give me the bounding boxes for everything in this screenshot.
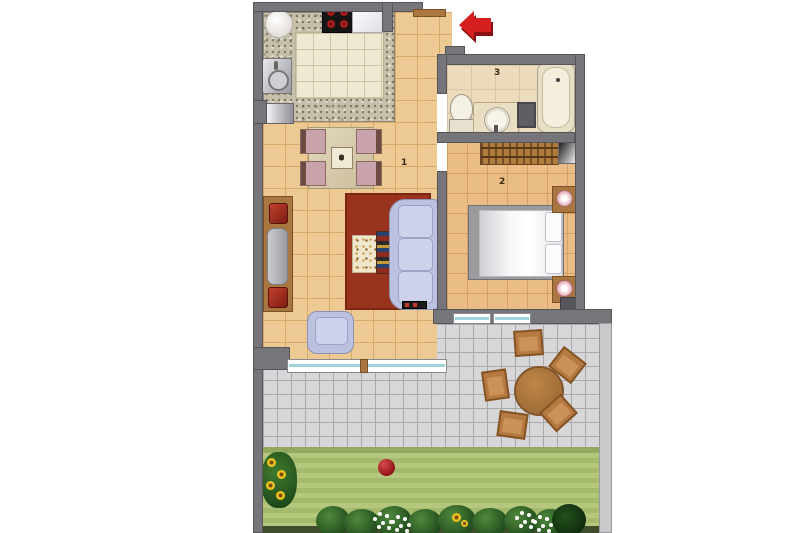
sofa <box>389 199 438 310</box>
chair-back <box>376 130 381 153</box>
wall-left <box>253 2 263 533</box>
wall-living-bottom <box>253 347 290 370</box>
hedge-sunflower <box>461 520 468 527</box>
hedge-bush <box>408 509 442 533</box>
terrace-chair <box>481 368 510 401</box>
bedroom-window <box>453 313 491 324</box>
red-decor-icon <box>268 287 288 308</box>
red-dot <box>413 303 417 307</box>
pillow <box>545 244 562 274</box>
pillow <box>545 212 562 242</box>
chair-back <box>301 162 306 185</box>
hedge-bush <box>344 509 380 533</box>
entry-door-leaf <box>413 9 446 17</box>
room-label-bedroom: 2 <box>499 177 505 187</box>
sink-basin-icon <box>268 70 289 91</box>
wall-bath-top <box>440 54 585 65</box>
media-items <box>402 301 427 309</box>
burner-icon <box>340 20 348 28</box>
terrace-fence-right <box>599 323 612 533</box>
wall-bath-bottom <box>437 132 575 143</box>
sunflower-icon <box>276 491 285 500</box>
entrance-arrow-icon <box>458 5 496 47</box>
wall-living-bedroom <box>437 171 447 313</box>
sofa-cushion <box>398 238 433 271</box>
tv-icon <box>267 228 288 285</box>
armchair <box>307 311 354 354</box>
dining-chair <box>356 161 382 186</box>
sofa-cushion <box>398 205 433 238</box>
red-dot <box>405 303 409 307</box>
bed-frame <box>468 205 564 280</box>
floor-plan: 1 2 3 <box>0 0 800 533</box>
lamp-icon <box>556 280 573 297</box>
hedge-sunflower <box>452 513 461 522</box>
bedroom-window <box>493 313 531 324</box>
wall-kitchen-divider <box>382 2 393 32</box>
kitchen-tiled-area <box>295 32 384 99</box>
sofa-cushion <box>398 271 433 304</box>
daisy-flowers <box>378 512 382 516</box>
kitchen-sink <box>262 58 292 94</box>
hedge-bush <box>472 508 508 533</box>
lamp-icon <box>556 190 573 207</box>
red-ball <box>378 459 395 476</box>
dishwasher <box>266 103 294 124</box>
daisy-flowers <box>396 515 400 519</box>
wall-right <box>575 54 585 324</box>
wall-top <box>253 2 423 12</box>
terrace-chair <box>496 410 528 440</box>
armchair-cushion <box>315 317 348 345</box>
faucet-icon <box>274 61 278 70</box>
sunflower-icon <box>277 470 286 479</box>
burner-icon <box>327 20 335 28</box>
kitchen-round-top <box>265 10 293 38</box>
dining-chair <box>300 161 326 186</box>
coffee-mat <box>352 235 379 273</box>
daisy-flowers <box>538 515 542 519</box>
dining-chair <box>356 129 382 154</box>
terrace-chair <box>513 329 544 357</box>
faucet-icon <box>494 125 498 132</box>
room-label-bathroom: 3 <box>494 68 500 78</box>
wall-kitchen-stub <box>253 100 267 124</box>
dining-chair <box>300 129 326 154</box>
chair-back <box>376 162 381 185</box>
sunflower-icon <box>266 481 275 490</box>
bathtub-inner <box>542 67 570 128</box>
door-mullion <box>360 359 368 373</box>
table-centerpiece <box>331 147 353 169</box>
room-label-living: 1 <box>401 158 407 168</box>
plant-icon <box>339 153 344 162</box>
wall-bath-left <box>437 54 447 94</box>
sunflower-icon <box>267 458 276 467</box>
chair-back <box>301 130 306 153</box>
palm-plant <box>552 504 586 533</box>
lawn-edge <box>263 447 599 453</box>
drain-icon <box>556 78 560 82</box>
daisy-flowers <box>520 511 524 515</box>
wardrobe-rail <box>481 147 558 149</box>
wardrobe-rail <box>481 156 558 158</box>
hedge-bush <box>376 506 412 533</box>
bathtub <box>537 62 575 133</box>
bath-cabinet <box>517 102 536 128</box>
vanity-counter <box>473 102 519 136</box>
red-decor-icon <box>269 203 288 224</box>
